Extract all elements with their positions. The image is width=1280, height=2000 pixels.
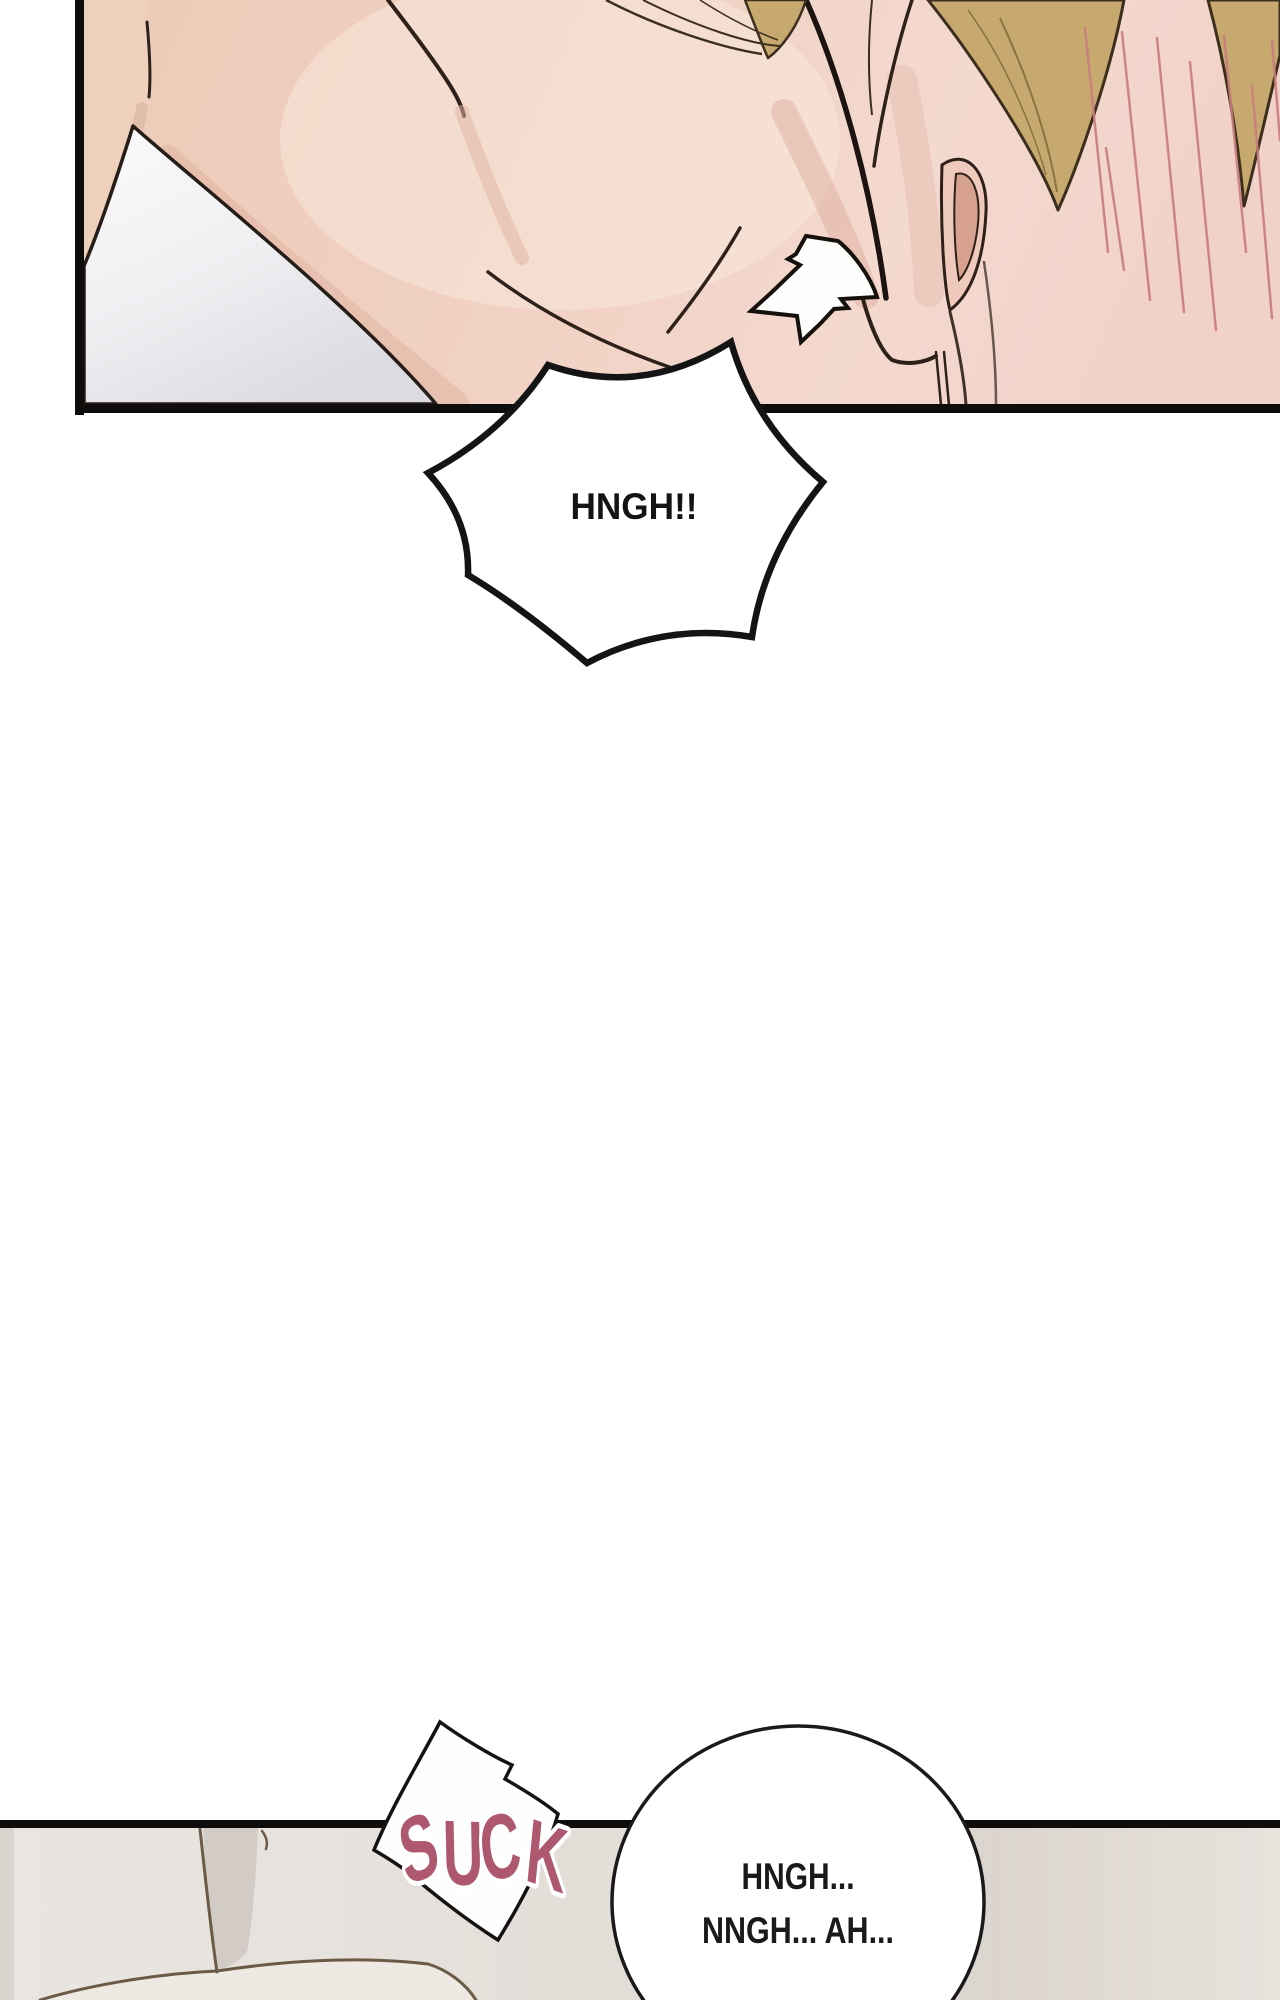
comic-art: HNGH!! SUCK HNGH... NNGH... AH... bbox=[0, 0, 1280, 2000]
speech-text-line1: HNGH... bbox=[742, 1856, 855, 1897]
top-panel bbox=[75, 0, 1280, 415]
comic-page: HNGH!! SUCK HNGH... NNGH... AH... bbox=[0, 0, 1280, 2000]
shout-bubble-text: HNGH!! bbox=[571, 486, 698, 527]
bedding-left-shade bbox=[0, 1828, 14, 2000]
speech-text-line2: NNGH... AH... bbox=[702, 1910, 894, 1951]
speech-bubble: HNGH... NNGH... AH... bbox=[612, 1726, 984, 2000]
panel-border-left bbox=[75, 0, 84, 415]
top-panel-art bbox=[84, 0, 1280, 406]
